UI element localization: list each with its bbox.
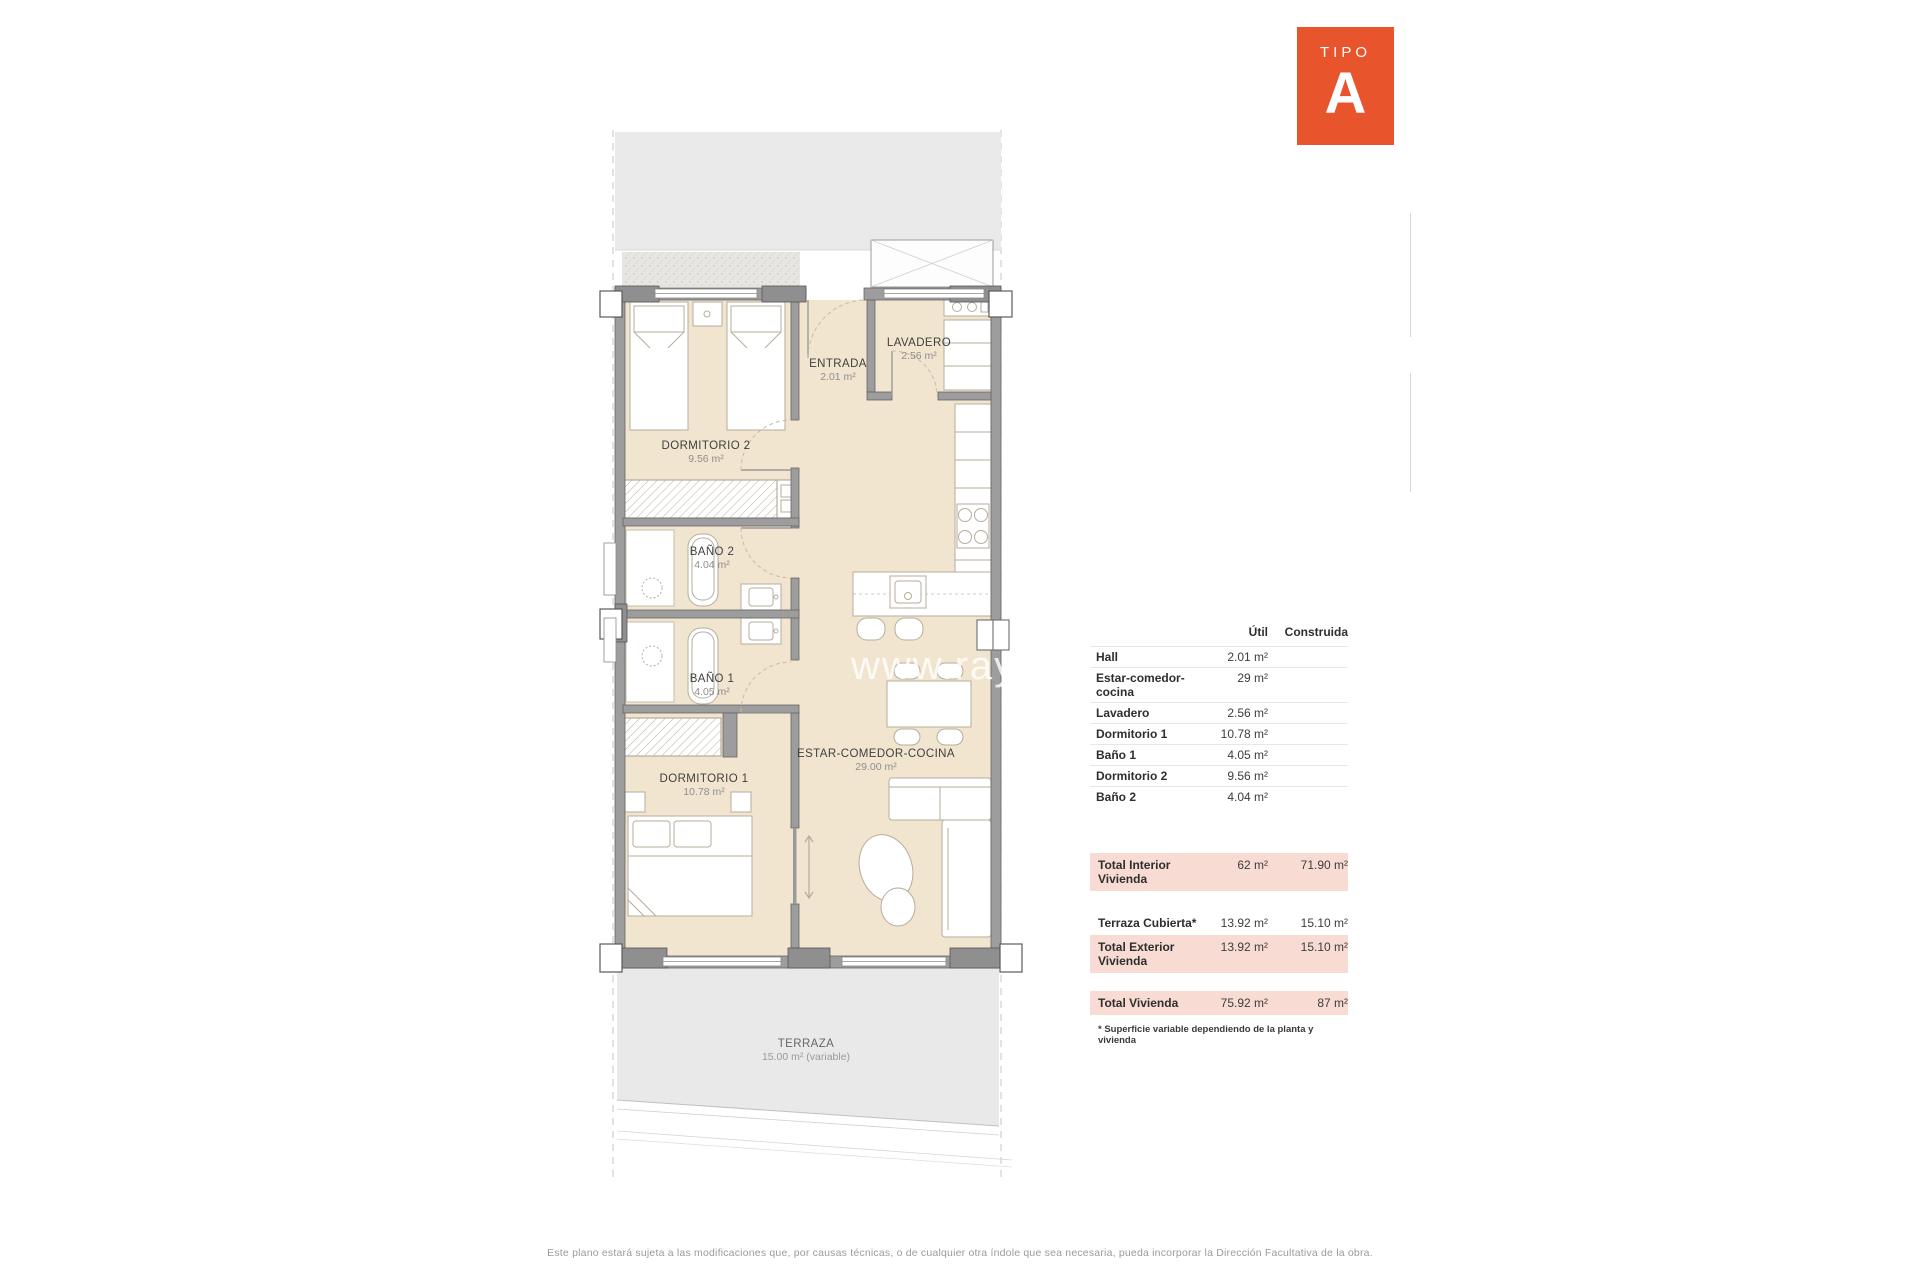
table-header: Útil Construida [1090,623,1348,646]
row-label: Dormitorio 2 [1096,769,1206,783]
total-construida: 87 m² [1268,996,1348,1010]
bathtub-icon [688,534,718,606]
row-util: 4.05 m² [1206,748,1268,762]
total-label: Total Exterior Vivienda [1098,940,1206,968]
total-construida: 15.10 m² [1268,940,1348,954]
page: { "badge": {"label": "TIPO", "letter": "… [0,0,1920,1280]
type-badge-label: TIPO [1297,44,1394,61]
terrace-area [617,968,1012,1167]
table-footnote: * Superficie variable dependiendo de la … [1090,1024,1348,1046]
row-label: Dormitorio 1 [1096,727,1206,741]
type-badge: TIPO A [1297,27,1394,145]
type-badge-letter: A [1297,65,1394,123]
table-row: Baño 1 4.05 m² [1090,744,1348,765]
single-bed-icon [727,302,785,430]
row-label: Baño 2 [1096,790,1206,804]
single-bed-icon [630,302,688,430]
total-util: 13.92 m² [1206,916,1268,930]
total-construida: 71.90 m² [1268,858,1348,872]
table-row: Hall 2.01 m² [1090,646,1348,667]
wardrobe-icon [623,718,721,756]
kitchen-island-icon [853,572,991,616]
total-util: 62 m² [1206,858,1268,872]
total-label: Total Interior Vivienda [1098,858,1206,886]
utility-box [977,620,1009,650]
row-util: 29 m² [1206,671,1268,685]
skylight-box [871,240,993,287]
header-util: Útil [1206,625,1268,639]
row-util: 2.01 m² [1206,650,1268,664]
table-row: Dormitorio 2 9.56 m² [1090,765,1348,786]
edge-line [1410,373,1411,492]
areas-table: Útil Construida Hall 2.01 m² Estar-comed… [1090,623,1348,1046]
row-label: Hall [1096,650,1206,664]
shower-icon [626,622,674,702]
bathtub-icon [688,628,718,704]
sink-icon [741,584,781,610]
row-util: 2.56 m² [1206,706,1268,720]
edge-line [1410,213,1411,337]
row-util: 4.04 m² [1206,790,1268,804]
total-util: 13.92 m² [1206,940,1268,954]
row-util: 9.56 m² [1206,769,1268,783]
total-label: Terraza Cubierta* [1098,916,1206,930]
header-construida: Construida [1268,625,1348,639]
table-row: Lavadero 2.56 m² [1090,702,1348,723]
floor-plan [590,110,1070,1255]
total-exterior-row: Total Exterior Vivienda 13.92 m² 15.10 m… [1090,935,1348,973]
sink-icon [741,618,781,644]
stove-icon [957,504,989,548]
total-vivienda-row: Total Vivienda 75.92 m² 87 m² [1090,991,1348,1015]
row-util: 10.78 m² [1206,727,1268,741]
row-label: Estar-comedor-cocina [1096,671,1206,699]
laundry-cabinet-icon [944,320,991,390]
total-label: Total Vivienda [1098,996,1206,1010]
row-label: Lavadero [1096,706,1206,720]
table-row: Estar-comedor-cocina 29 m² [1090,667,1348,702]
table-row: Baño 2 4.04 m² [1090,786,1348,807]
wardrobe-icon [623,480,797,518]
table-row: Dormitorio 1 10.78 m² [1090,723,1348,744]
row-label: Baño 1 [1096,748,1206,762]
total-interior-row: Total Interior Vivienda 62 m² 71.90 m² [1090,853,1348,891]
shower-icon [626,530,674,606]
nightstand-icon [693,302,722,326]
footer-disclaimer: Este plano estará sujeta a las modificac… [0,1247,1920,1259]
terraza-cubierta-row: Terraza Cubierta* 13.92 m² 15.10 m² [1090,911,1348,935]
total-util: 75.92 m² [1206,996,1268,1010]
total-construida: 15.10 m² [1268,916,1348,930]
